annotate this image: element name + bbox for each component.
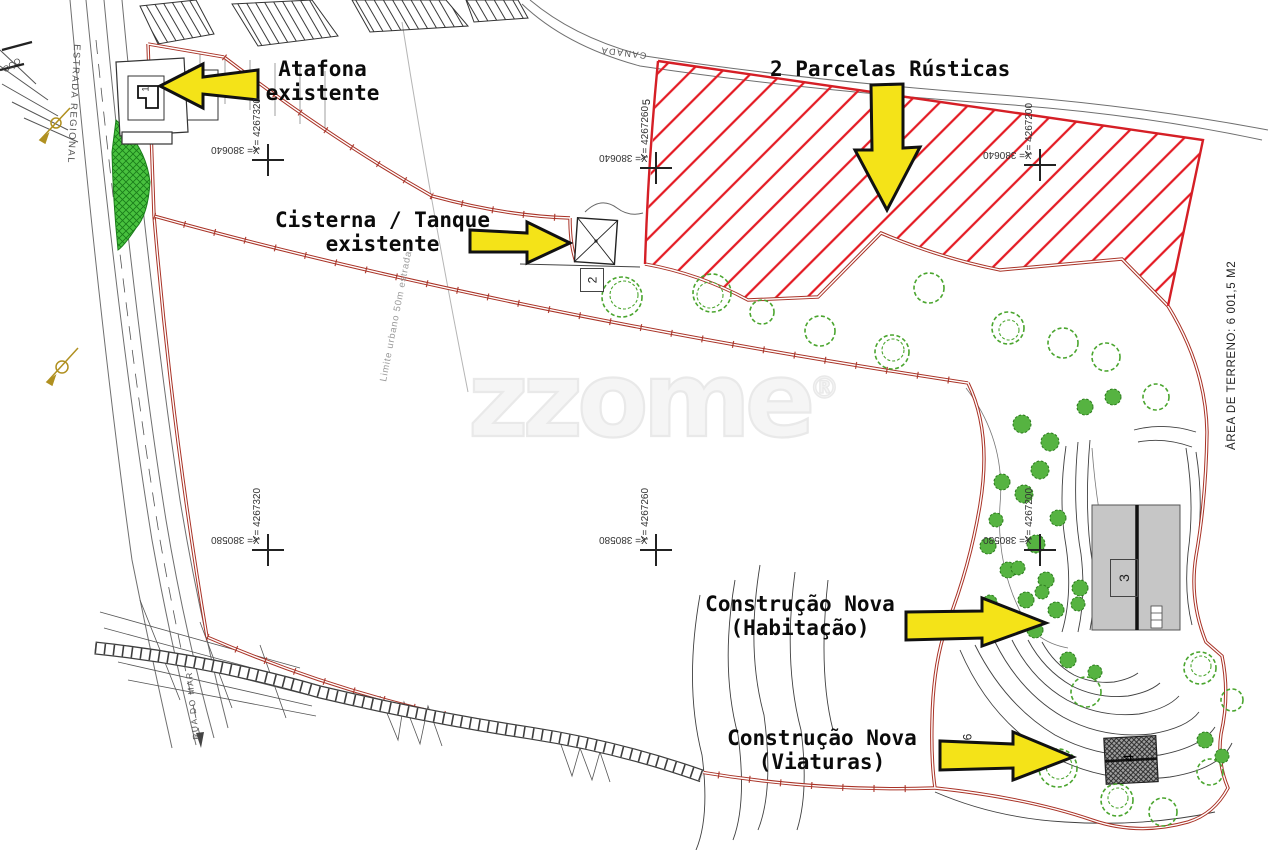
label-atafona: Atafona existente [250, 57, 395, 105]
neighbour-buildings-hatched [140, 0, 528, 46]
plan-number-3-box: 3 [1110, 559, 1138, 597]
label-habitacao: Construção Nova (Habitação) [705, 592, 895, 640]
label-parcelas: 2 Parcelas Rústicas [770, 57, 1010, 81]
terrain-area-label: ÁREA DE TERRENO: 6 001,5 M2 [1226, 150, 1238, 450]
plan-number-4: 4 [1120, 754, 1136, 762]
plan-number-1: 1 [141, 86, 151, 91]
plan-number-2-box: 2 [580, 268, 604, 292]
plan-number-2: 2 [585, 277, 599, 284]
plan-number-3: 3 [1116, 574, 1132, 582]
plan-number-6: 6 [960, 734, 974, 741]
site-plan: zzome® Atafona existente Cisterna / Tanq… [0, 0, 1280, 850]
label-viaturas: Construção Nova (Viaturas) [727, 726, 917, 774]
plan-number-5: 5 [641, 99, 653, 105]
label-cisterna: Cisterna / Tanque existente [275, 208, 490, 256]
